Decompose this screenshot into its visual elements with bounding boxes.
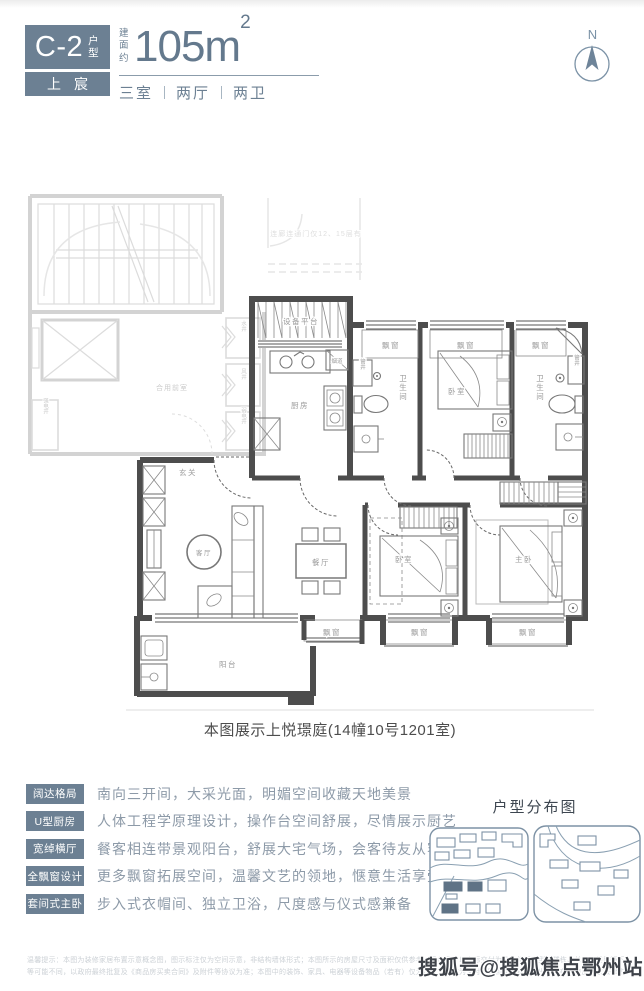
entry-label: 玄关: [179, 467, 197, 477]
pipe-shaft-label: 管井: [359, 357, 366, 371]
weak-elec-shaft-label: 弱电井: [240, 408, 247, 426]
doors: [214, 450, 548, 535]
layout-rooms: 三室: [119, 82, 153, 103]
master-bedroom-label: 主卧: [515, 554, 533, 564]
floor-plan: 合用前室 水井 风井 弱电井 强电井 连廊连通门仅12、15层有: [0, 188, 644, 718]
living-room: 客厅: [143, 466, 263, 618]
layout-baths: 两卫: [233, 82, 267, 103]
feature-tag: 套间式主卧: [26, 894, 84, 914]
unit-badge: C-2 户型 上宸: [25, 25, 110, 103]
water-shaft-label: 水井: [240, 319, 247, 333]
site-map: [428, 824, 642, 924]
bay-window-label: 飘窗: [323, 627, 341, 637]
feature-tag: 宽绰横厅: [26, 839, 84, 859]
feature-tag: U型厨房: [26, 811, 84, 831]
balcony: 阳台: [141, 636, 237, 690]
feature-row: 套间式主卧 步入式衣帽间、独立卫浴，尺度感与仪式感兼备: [26, 890, 472, 918]
unit-type-label: 户型: [88, 36, 100, 59]
area-superscript: 2: [240, 12, 251, 33]
flue-label: 烟道: [331, 357, 343, 365]
area-block: 建面约 105m2 三室 两厅 两卫: [119, 25, 319, 103]
feature-row: 阔达格局 南向三开间，大采光面，明媚空间收藏天地美景: [26, 780, 472, 808]
separator: [164, 86, 165, 99]
feature-row: 宽绰横厅 餐客相连带景观阳台，舒展大宅气场，会客待友从容不迫: [26, 835, 472, 863]
header-divider: [119, 75, 319, 76]
feature-row: U型厨房 人体工程学原理设计，操作台空间舒展，尽情展示厨艺: [26, 808, 472, 836]
unit-code-box: C-2 户型: [25, 25, 110, 69]
kitchen: 烟道 厨房: [254, 350, 348, 450]
living-room-label: 客厅: [196, 548, 212, 557]
shared-lobby-label: 合用前室: [156, 383, 188, 392]
bay-window-label: 飘窗: [457, 340, 475, 350]
north-label: N: [570, 28, 615, 41]
feature-desc: 餐客相连带景观阳台，舒展大宅气场，会客待友从容不迫: [97, 839, 472, 859]
bay-window-label: 飘窗: [411, 627, 429, 637]
feature-desc: 人体工程学原理设计，操作台空间舒展，尽情展示厨艺: [97, 811, 457, 831]
bathroom-label: 卫生间: [535, 374, 544, 401]
brand-label: 上宸: [25, 72, 110, 96]
bay-window-label: 飘窗: [382, 340, 400, 350]
dining-room-label: 餐厅: [312, 558, 330, 567]
compass-icon: [570, 42, 615, 84]
strong-elec-shaft-label: 强电井: [42, 398, 49, 416]
air-shaft-label: 风井: [240, 368, 247, 381]
watermark: 搜狐号@搜狐焦点鄂州站: [418, 951, 643, 980]
common-area: 合用前室 水井 风井 弱电井 强电井 连廊连通门仅12、15层有: [30, 196, 594, 710]
feature-list: 阔达格局 南向三开间，大采光面，明媚空间收藏天地美景 U型厨房 人体工程学原理设…: [26, 780, 472, 918]
bay-window-label: 飘窗: [519, 627, 537, 637]
feature-tag: 全飘窗设计: [26, 866, 84, 886]
floorplan-page: C-2 户型 上宸 建面约 105m2 三室 两厅 两卫 N: [0, 0, 644, 991]
header: C-2 户型 上宸 建面约 105m2 三室 两厅 两卫: [25, 25, 319, 103]
north-indicator: N: [570, 28, 615, 89]
distribution-map: 户型分布图: [428, 796, 642, 929]
bay-window-label: 飘窗: [532, 340, 550, 350]
feature-desc: 更多飘窗拓展空间，温馨文艺的领地，惬意生活享受: [97, 866, 442, 886]
area-value: 105m2: [134, 25, 251, 68]
feature-row: 全飘窗设计 更多飘窗拓展空间，温馨文艺的领地，惬意生活享受: [26, 863, 472, 891]
bathroom-label: 卫生间: [398, 374, 407, 401]
balcony-label: 阳台: [219, 659, 237, 669]
pipe-shaft-label: 管井: [573, 353, 580, 367]
separator: [221, 86, 222, 99]
layout-summary: 三室 两厅 两卫: [119, 82, 319, 103]
bedroom-label: 卧室: [395, 554, 413, 564]
plan-caption: 本图展示上悦璟庭(14幢10号1201室): [0, 719, 644, 740]
feature-tag: 阔达格局: [26, 784, 84, 804]
kitchen-label: 厨房: [291, 400, 309, 410]
bathroom-1: 飘窗 管井 卫生间: [353, 340, 408, 452]
bridge-note: 连廊连通门仅12、15层有: [270, 229, 362, 238]
page-edge-shade: [0, 0, 644, 8]
equipment-platform-label: 设备平台: [283, 316, 319, 326]
equipment-platform: 设备平台: [258, 302, 346, 338]
area-prefix: 建面约: [119, 28, 130, 65]
feature-desc: 南向三开间，大采光面，明媚空间收藏天地美景: [97, 784, 412, 804]
unit-code: C-2: [35, 31, 83, 64]
bedroom-label: 卧室: [448, 386, 466, 396]
feature-desc: 步入式衣帽间、独立卫浴，尺度感与仪式感兼备: [97, 894, 412, 914]
distribution-title: 户型分布图: [428, 796, 642, 817]
layout-halls: 两厅: [176, 82, 210, 103]
